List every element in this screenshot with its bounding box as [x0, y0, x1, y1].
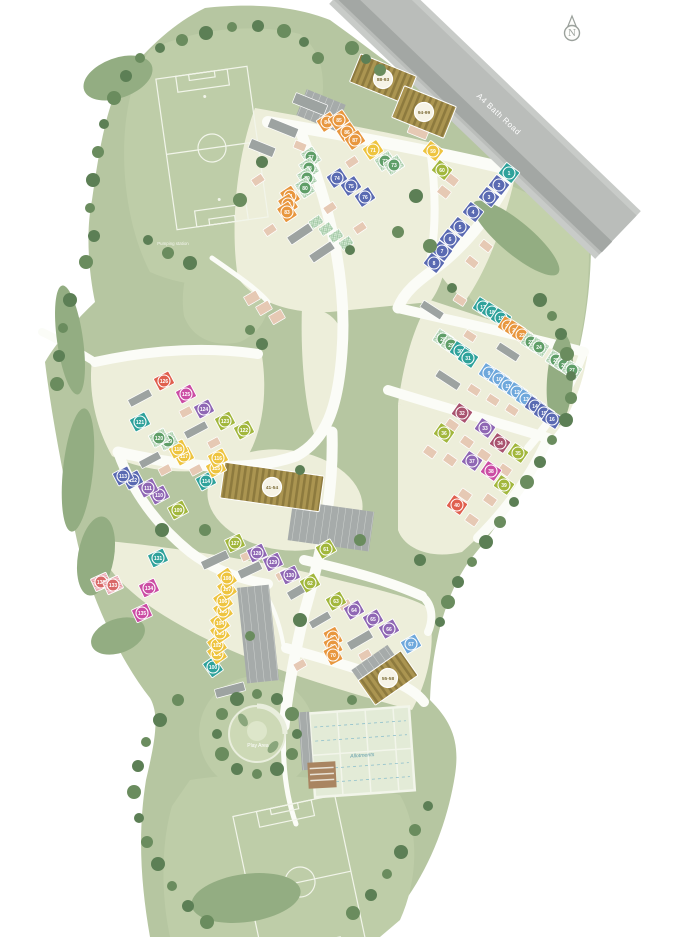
plot-number: 133 [109, 583, 118, 589]
tree [162, 247, 174, 259]
tree [127, 785, 141, 799]
tree [467, 557, 477, 567]
tree [233, 193, 247, 207]
tree [547, 311, 557, 321]
tree [347, 695, 357, 705]
tree [441, 595, 455, 609]
tree [88, 230, 100, 242]
plot-number: 120 [155, 436, 164, 442]
tree [176, 34, 188, 46]
plot-number: 111 [144, 486, 152, 492]
plot-number: 123 [221, 419, 230, 425]
tree [293, 613, 307, 627]
plot-number: 125 [182, 392, 191, 398]
tree [452, 576, 464, 588]
tree [423, 801, 433, 811]
tree [183, 256, 197, 270]
plot-number: 64 [351, 608, 357, 614]
tree [107, 91, 121, 105]
tree [120, 70, 132, 82]
tree [547, 435, 557, 445]
plot-number: 134 [145, 586, 154, 592]
plot-number: 74 [334, 176, 340, 182]
tree [286, 748, 298, 760]
tree [559, 413, 573, 427]
tree [292, 729, 302, 739]
north-arrow-icon: N [565, 16, 580, 41]
plot-number: 122 [240, 428, 249, 434]
tree [227, 22, 237, 32]
plot-number: 114 [202, 479, 210, 485]
tree [345, 245, 355, 255]
tree [53, 350, 65, 362]
tree [200, 915, 214, 929]
plot-number: 65 [370, 617, 376, 623]
plot-number: 66 [386, 627, 392, 633]
plot-number: 129 [269, 560, 278, 566]
plot-number: 9 [488, 371, 491, 377]
tree [153, 713, 167, 727]
plot-number: 73 [391, 163, 397, 169]
tree [312, 52, 324, 64]
tree [555, 328, 567, 340]
tree [216, 708, 228, 720]
plot-number: 118 [174, 447, 182, 453]
tree [423, 239, 437, 253]
tree [199, 26, 213, 40]
plot-number: 121 [136, 420, 145, 426]
tree [230, 692, 244, 706]
tree [277, 24, 291, 38]
tree [285, 707, 299, 721]
tree [212, 729, 222, 739]
tree [354, 534, 366, 546]
tree [435, 617, 445, 627]
plot-number: 135 [138, 611, 147, 617]
plot-number: 59 [430, 149, 436, 155]
plot-number: 6 [449, 237, 452, 243]
tree [92, 146, 104, 158]
plot-number: 87 [352, 138, 358, 144]
tree [135, 53, 145, 63]
apartment-range: 94-99 [418, 110, 431, 116]
plot-number: 113 [119, 474, 127, 480]
plot-number: 124 [200, 407, 209, 413]
plot-number: 7 [441, 249, 444, 255]
plot-number: 8 [433, 261, 436, 267]
plot-number: 1 [508, 171, 511, 177]
tree [86, 173, 100, 187]
development-masterplan-svg: A4 Bath Road N [0, 0, 700, 937]
tree [172, 694, 184, 706]
tree [346, 906, 360, 920]
tree [382, 869, 392, 879]
plot-number: 35 [515, 451, 521, 457]
site-plan-map: A4 Bath Road N [0, 0, 700, 937]
plot-number: 31 [465, 356, 471, 362]
tree [252, 689, 262, 699]
plot-number: 63 [333, 599, 339, 605]
plot-number: 67 [408, 642, 414, 648]
tree [155, 523, 169, 537]
tree [447, 283, 457, 293]
tree [566, 371, 576, 381]
plot-number: 109 [174, 508, 183, 514]
plot-number: 38 [488, 469, 494, 475]
plot-number: 83 [284, 210, 290, 216]
pumping-station-label: Pumping station [157, 241, 189, 246]
apartment-range: 41-54 [266, 485, 279, 491]
plot-number: 131 [154, 556, 163, 562]
tree [141, 737, 151, 747]
tree [132, 760, 144, 772]
play-area-label: Play Area [247, 743, 269, 749]
tree [365, 889, 377, 901]
plot-number: 85 [336, 118, 342, 124]
tree [99, 119, 109, 129]
tree [134, 813, 144, 823]
apartment-range: 88-93 [377, 77, 390, 83]
tree [151, 857, 165, 871]
plot-number: 100 [209, 665, 218, 671]
plot-number: 3 [488, 195, 491, 201]
tree [63, 293, 77, 307]
tree [345, 41, 359, 55]
plot-number: 108 [223, 576, 232, 582]
tree [409, 824, 421, 836]
svg-text:N: N [568, 29, 576, 39]
tree [167, 881, 177, 891]
tree [394, 845, 408, 859]
plot-number: 24 [536, 345, 542, 351]
tree [256, 338, 268, 350]
tree [414, 554, 426, 566]
tree [85, 203, 95, 213]
tree [295, 465, 305, 475]
tree [252, 769, 262, 779]
tree [155, 43, 165, 53]
plot-number: 61 [323, 547, 329, 553]
tree [245, 631, 255, 641]
tree [141, 836, 153, 848]
tree [215, 747, 229, 761]
tree [534, 456, 546, 468]
plot-number: 116 [214, 456, 222, 462]
plot-number: 128 [253, 551, 262, 557]
plot-number: 126 [160, 379, 169, 385]
plot-number: 80 [302, 186, 308, 192]
tree [494, 516, 506, 528]
apartment-range: 55-58 [382, 676, 395, 682]
plot-number: 4 [472, 210, 475, 216]
plot-number: 75 [348, 184, 354, 190]
tree [533, 293, 547, 307]
plot-number: 37 [469, 459, 475, 465]
tree [271, 693, 283, 705]
tree [361, 54, 371, 64]
tree [58, 323, 68, 333]
plot-number: 60 [439, 168, 445, 174]
tree [50, 377, 64, 391]
plot-number: 16 [549, 417, 555, 423]
plot-number: 33 [482, 426, 488, 432]
tree [231, 763, 243, 775]
plot-number: 32 [459, 411, 465, 417]
tree [409, 189, 423, 203]
tree [560, 347, 574, 361]
tree [199, 524, 211, 536]
plot-number: 62 [307, 581, 313, 587]
plot-number: 130 [286, 573, 295, 579]
community-building [307, 761, 336, 788]
plot-number: 40 [454, 503, 460, 509]
tree [509, 497, 519, 507]
tree [252, 20, 264, 32]
tree [143, 235, 153, 245]
tree [479, 535, 493, 549]
plot-number: 127 [231, 541, 240, 547]
tree [245, 325, 255, 335]
tree [299, 37, 309, 47]
tree [565, 392, 577, 404]
plot-number: 2 [498, 183, 501, 189]
plot-number: 36 [441, 431, 447, 437]
plot-number: 70 [330, 653, 336, 659]
plot-number: 34 [497, 441, 503, 447]
tree [270, 762, 284, 776]
tree [392, 226, 404, 238]
plot-number: 71 [370, 148, 376, 154]
plot-number: 110 [155, 493, 163, 499]
plot-number: 76 [362, 195, 368, 201]
play-area: Play Area [229, 706, 285, 762]
tree [182, 900, 194, 912]
tree [256, 156, 268, 168]
tree [374, 64, 386, 76]
plot-number: 5 [459, 225, 462, 231]
tree [520, 475, 534, 489]
plot-number: 39 [501, 483, 507, 489]
tree [79, 255, 93, 269]
